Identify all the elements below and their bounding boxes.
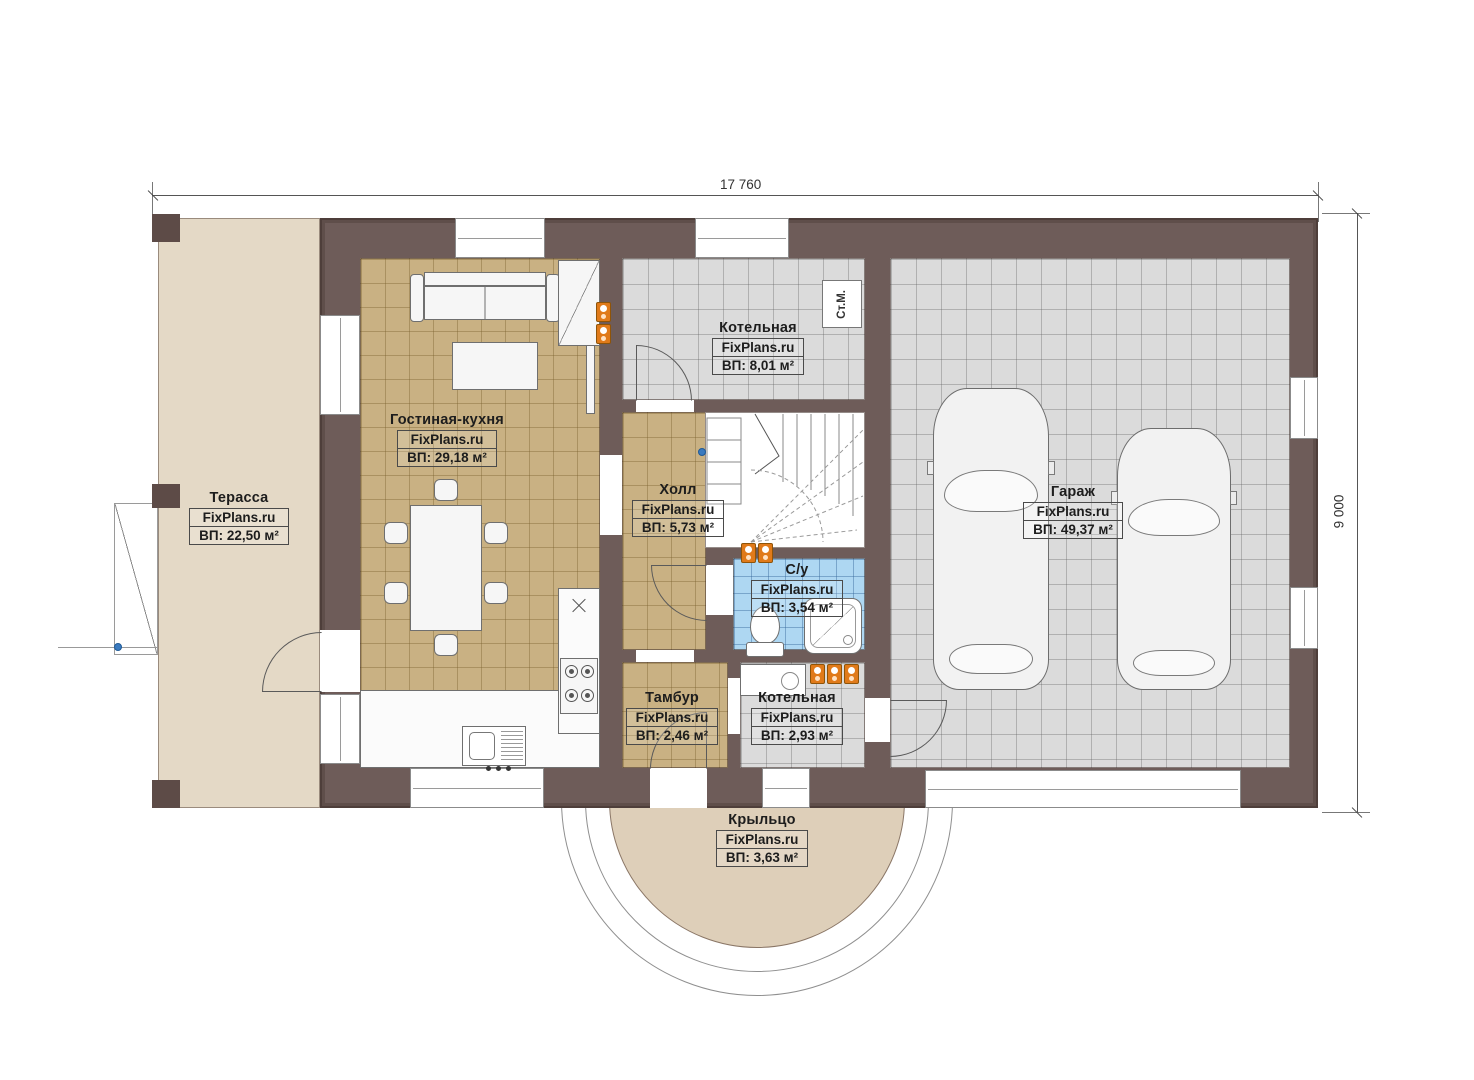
window <box>1290 377 1318 439</box>
radiator <box>827 664 842 684</box>
dining-table <box>410 505 482 631</box>
car <box>1117 428 1231 690</box>
window <box>320 315 360 415</box>
radiator <box>810 664 825 684</box>
extension-line <box>1318 182 1319 222</box>
dimension-line-top <box>152 195 1318 196</box>
sink-bowl <box>469 732 495 760</box>
terrace-post <box>152 214 180 242</box>
room-name: С/у <box>722 562 872 578</box>
room-name: Котельная <box>722 690 872 706</box>
sink-drainer <box>501 731 523 761</box>
chair <box>434 634 458 656</box>
room-label-hall: Холл FixPlans.ru ВП: 5,73 м² <box>603 482 753 537</box>
chair <box>484 522 508 544</box>
tall-cabinet <box>558 260 600 346</box>
room-area: ВП: 29,18 м² <box>398 449 496 466</box>
sofa-armrest <box>410 274 424 322</box>
marker-dot <box>698 448 706 456</box>
room-label-porch: Крыльцо FixPlans.ru ВП: 3,63 м² <box>687 812 837 867</box>
room-label-terrace: Терасса FixPlans.ru ВП: 22,50 м² <box>164 490 314 545</box>
car-mirror <box>927 461 934 475</box>
dimension-line-right <box>1357 213 1358 812</box>
room-site: FixPlans.ru <box>1024 503 1122 521</box>
toilet-tank <box>746 642 784 657</box>
dimension-label-height: 9 000 <box>1331 489 1346 535</box>
room-site: FixPlans.ru <box>752 581 843 599</box>
room-area: ВП: 3,63 м² <box>717 849 808 866</box>
room-area: ВП: 3,54 м² <box>752 599 843 616</box>
sofa-back <box>424 272 546 286</box>
boiler-sink-icon <box>781 672 799 690</box>
car-rear-window <box>949 644 1033 674</box>
drain-icon <box>843 635 853 645</box>
floor-plan-canvas: 17 760 9 000 <box>0 0 1474 1080</box>
room-name: Гараж <box>998 484 1148 500</box>
radiator <box>596 324 611 344</box>
room-name: Крыльцо <box>687 812 837 828</box>
room-area: ВП: 22,50 м² <box>190 527 288 544</box>
room-site: FixPlans.ru <box>752 709 843 727</box>
stove <box>560 658 598 714</box>
sofa-seat <box>424 286 546 320</box>
room-name: Гостиная-кухня <box>372 412 522 428</box>
coffee-table <box>452 342 538 390</box>
burner-icon <box>565 689 578 702</box>
opening-hall-vestibule <box>636 650 694 662</box>
radiator <box>758 543 773 563</box>
marker-dot <box>114 643 122 651</box>
extension-line <box>1322 812 1370 813</box>
fixture-dot <box>486 766 491 771</box>
terrace-door-opening <box>320 630 360 692</box>
sink-cross-icon <box>571 598 587 614</box>
window <box>695 218 789 258</box>
entrance-door-opening <box>650 768 707 808</box>
garage-gate <box>925 770 1241 808</box>
car-mirror <box>1230 491 1237 505</box>
room-site: FixPlans.ru <box>627 709 718 727</box>
room-site: FixPlans.ru <box>190 509 288 527</box>
room-site: FixPlans.ru <box>633 501 724 519</box>
room-area: ВП: 5,73 м² <box>633 519 724 536</box>
terrace-steps <box>114 503 158 655</box>
burner-icon <box>581 689 594 702</box>
car-mirror <box>1048 461 1055 475</box>
car <box>933 388 1049 690</box>
chair <box>434 479 458 501</box>
radiator <box>596 302 611 322</box>
room-label-garage: Гараж FixPlans.ru ВП: 49,37 м² <box>998 484 1148 539</box>
dimension-label-width: 17 760 <box>714 177 767 192</box>
room-name: Котельная <box>683 320 833 336</box>
window <box>410 768 544 808</box>
room-area: ВП: 49,37 м² <box>1024 521 1122 538</box>
burner-icon <box>565 665 578 678</box>
room-name: Терасса <box>164 490 314 506</box>
window <box>455 218 545 258</box>
car-rear-window <box>1133 650 1216 676</box>
room-area: ВП: 2,46 м² <box>627 727 718 744</box>
chair <box>384 522 408 544</box>
extension-line <box>1322 213 1370 214</box>
room-label-boiler-top: Котельная FixPlans.ru ВП: 8,01 м² <box>683 320 833 375</box>
room-site: FixPlans.ru <box>717 831 808 849</box>
room-area: ВП: 8,01 м² <box>713 357 804 374</box>
room-label-living: Гостиная-кухня FixPlans.ru ВП: 29,18 м² <box>372 412 522 467</box>
washing-machine-label: Ст.М. <box>836 290 848 319</box>
room-label-boiler-low: Котельная FixPlans.ru ВП: 2,93 м² <box>722 690 872 745</box>
door-opening-boiler-top <box>636 400 694 412</box>
window <box>320 694 360 764</box>
chair <box>484 582 508 604</box>
radiator <box>741 543 756 563</box>
kitchen-sink <box>462 726 526 766</box>
terrace-post <box>152 780 180 808</box>
terrace-guide-line <box>58 647 158 648</box>
chair <box>384 582 408 604</box>
room-site: FixPlans.ru <box>713 339 804 357</box>
room-name: Холл <box>603 482 753 498</box>
room-area: ВП: 2,93 м² <box>752 727 843 744</box>
room-site: FixPlans.ru <box>398 431 496 449</box>
room-label-bathroom: С/у FixPlans.ru ВП: 3,54 м² <box>722 562 872 617</box>
fixture-dot <box>496 766 501 771</box>
window <box>1290 587 1318 649</box>
boiler-exterior-door <box>762 768 810 808</box>
burner-icon <box>581 665 594 678</box>
radiator <box>844 664 859 684</box>
fixture-dot <box>506 766 511 771</box>
